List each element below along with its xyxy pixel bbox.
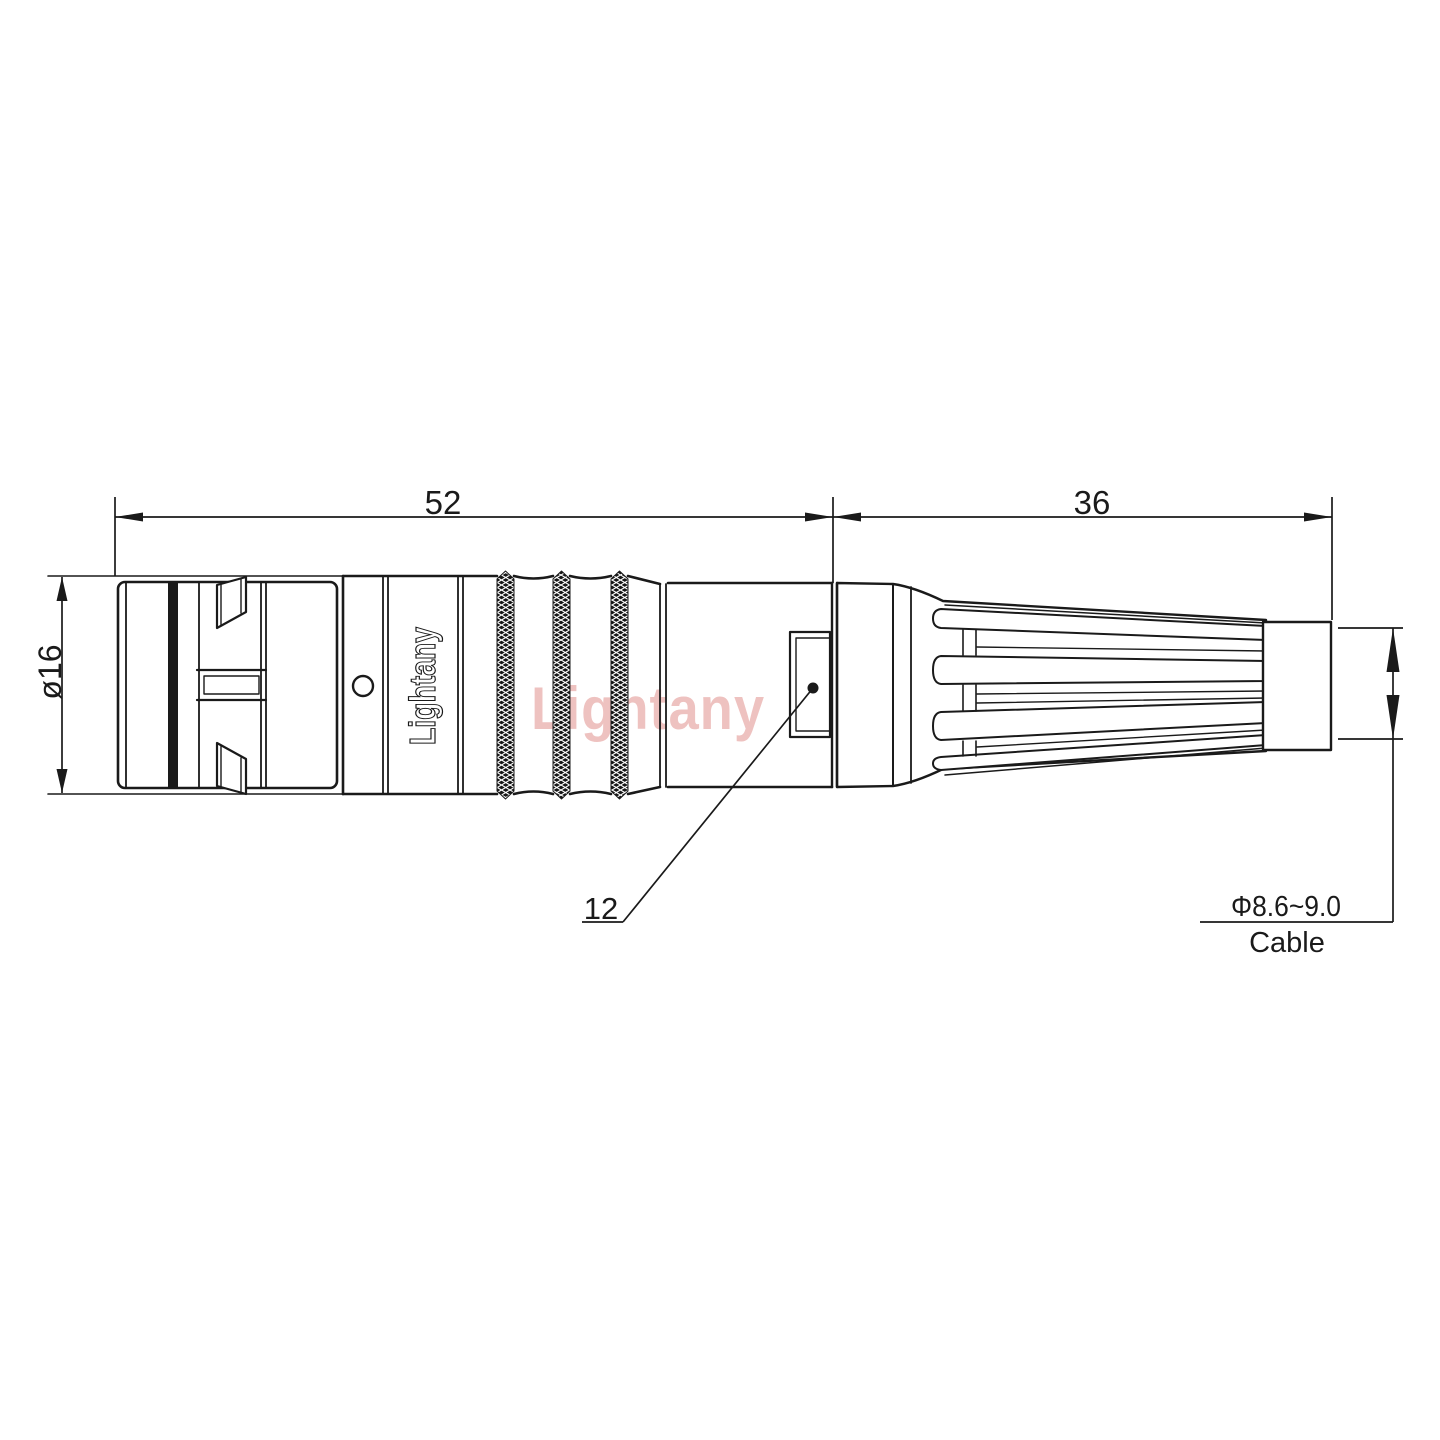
cable-bushing [1263, 622, 1331, 750]
leader-nut-flat-label: 12 [584, 891, 618, 926]
cable-label: Cable [1249, 927, 1325, 959]
brand-engraving: Lightany [402, 627, 443, 745]
locating-hole [353, 676, 373, 696]
leader-dot [808, 683, 819, 694]
bayonet-cutouts [217, 577, 246, 794]
sleeve-slot [168, 582, 178, 788]
dim-diameter-label: ø16 [32, 644, 68, 699]
drawing-page: Lightany [0, 0, 1440, 1440]
dim-body-length-label: 52 [425, 484, 462, 521]
cable-diameter-label: Φ8.6~9.0 [1231, 891, 1341, 923]
sleeve-h-cutout [197, 670, 266, 700]
technical-drawing: Lightany [0, 0, 1440, 1440]
dim-boot-length-label: 36 [1074, 484, 1111, 521]
